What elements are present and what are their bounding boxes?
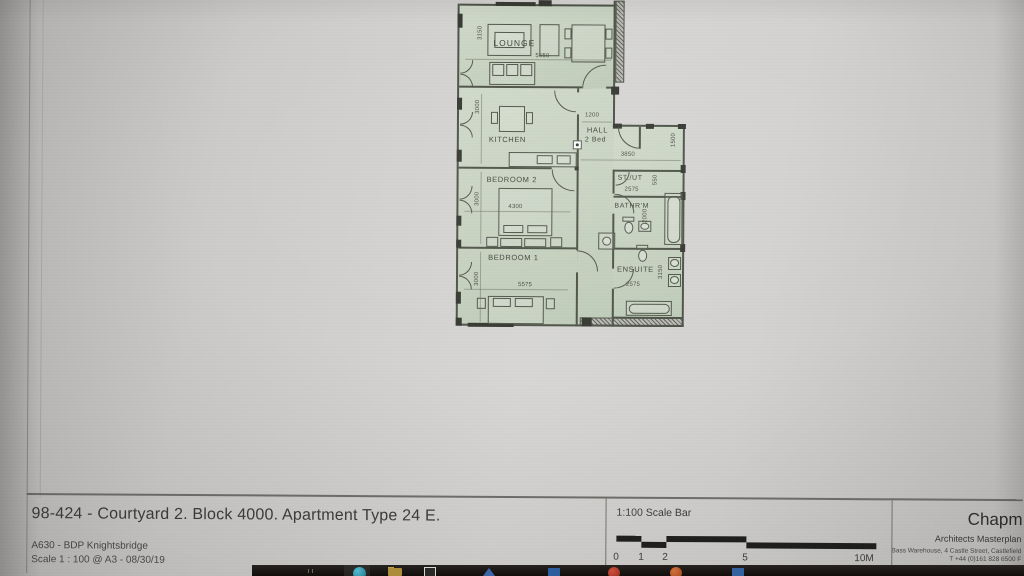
wall-pier — [539, 0, 552, 6]
monitor-photo: LOUNGE KITCHEN HALL 2 Bed BEDROOM 2 ST./… — [0, 0, 1024, 576]
armchair — [539, 24, 559, 56]
taskbar-glyph — [312, 569, 313, 573]
dining-chair — [605, 29, 612, 40]
firm-phone: T +44 (0)161 828 6500 F — [949, 556, 1021, 563]
scale-tick: 1 — [638, 552, 644, 563]
bathtub-inner — [628, 303, 669, 313]
wall-pier — [680, 244, 685, 252]
dimension-text: 550 — [653, 171, 659, 189]
scale-tick: 0 — [613, 552, 619, 563]
dimension-text: 4300 — [508, 204, 522, 210]
window-pier — [457, 150, 462, 162]
window-pier — [457, 98, 462, 110]
red-app-icon[interactable] — [608, 567, 620, 576]
dimension-text: 3850 — [621, 152, 635, 158]
dimension-text: 3000 — [475, 96, 481, 118]
toilet-icon — [638, 250, 647, 262]
scale-bar-segment — [746, 542, 876, 549]
hatched-wall — [615, 1, 625, 83]
dimension-text: 3000 — [474, 188, 480, 210]
sheet-border-line-inner — [40, 0, 44, 497]
scale-bar-segment — [666, 536, 746, 542]
wall-segment — [577, 88, 579, 92]
pillow — [503, 225, 523, 233]
wall-segment — [613, 170, 615, 194]
dimension-text: 2575 — [626, 282, 640, 288]
pillow — [493, 298, 511, 307]
kitchen-table — [499, 106, 525, 132]
basin-bowl — [670, 259, 679, 267]
firm-dept: Architects Masterplan — [935, 534, 1022, 545]
room-label-stut: ST./UT — [618, 175, 643, 182]
firm-address: Bass Warehouse, 4 Castle Street, Castlef… — [892, 547, 1021, 555]
room-label-hall-sub: 2 Bed — [585, 136, 606, 143]
sofa-cushion — [506, 64, 518, 76]
wardrobe — [524, 238, 546, 247]
windows-taskbar[interactable] — [252, 565, 1024, 576]
sofa-cushion — [520, 64, 532, 76]
blue-app2-icon[interactable] — [732, 568, 744, 576]
kitchen-chair — [526, 112, 533, 124]
dimension-text: 1200 — [585, 112, 599, 118]
bedside-table — [550, 237, 562, 247]
scale-tick: 10M — [854, 553, 874, 564]
window-pier — [456, 216, 461, 226]
scale-date-line: Scale 1 : 100 @ A3 - 08/30/19 — [31, 554, 165, 566]
orange-app-icon[interactable] — [670, 567, 682, 576]
wall-pier — [611, 87, 619, 95]
kitchen-sink — [537, 155, 553, 164]
scale-bar-label: 1:100 Scale Bar — [617, 507, 692, 519]
sheet-border-line — [26, 0, 31, 573]
dimension-text: 2000 — [642, 205, 648, 227]
firm-name: Chapm — [968, 510, 1023, 530]
door-leaf-entry — [639, 127, 641, 149]
dimension-text: 5650 — [535, 53, 549, 59]
wall-pier — [681, 165, 686, 173]
window-app-icon[interactable] — [424, 567, 436, 576]
wall-segment — [613, 1, 616, 127]
project-ref: A630 - BDP Knightsbridge — [31, 540, 148, 552]
wall-pier — [456, 318, 462, 326]
dining-chair — [605, 48, 612, 59]
dimension-line — [582, 121, 612, 122]
intercom-dot — [576, 143, 579, 146]
dining-chair — [564, 28, 571, 39]
room-label-lounge: LOUNGE — [493, 38, 535, 48]
blue-square-app-icon[interactable] — [548, 568, 560, 576]
floor-plan: LOUNGE KITCHEN HALL 2 Bed BEDROOM 2 ST./… — [450, 0, 697, 341]
wall-pier — [646, 124, 654, 129]
bathtub-inner — [667, 195, 680, 242]
dining-chair — [564, 47, 571, 58]
file-explorer-icon[interactable] — [388, 568, 402, 576]
dimension-text: 1500 — [671, 129, 677, 151]
window-pier — [456, 292, 461, 304]
scale-bar-segment — [641, 542, 666, 548]
room-label-hall: HALL — [587, 125, 608, 134]
dimension-text: 3000 — [474, 268, 480, 290]
bedside-table — [546, 298, 555, 309]
room-label-ensuite: ENSUITE — [617, 265, 654, 274]
dimension-text: 2575 — [625, 187, 639, 193]
wall-pier — [582, 317, 592, 326]
bedside-table — [486, 237, 498, 247]
dining-table — [571, 24, 605, 62]
kitchen-chair — [491, 112, 498, 124]
pillow — [527, 225, 547, 233]
toilet-icon — [624, 222, 633, 234]
pillow — [515, 298, 533, 307]
dimension-text: 5575 — [518, 282, 532, 288]
basin-bowl — [670, 276, 679, 284]
window-bar — [496, 2, 536, 6]
room-label-bedroom1: BEDROOM 1 — [488, 253, 538, 262]
window-pier — [458, 14, 463, 28]
wall-segment — [612, 289, 614, 327]
title-block-border — [27, 493, 1023, 501]
scale-bar-segment — [616, 536, 641, 542]
scale-tick: 2 — [662, 552, 668, 563]
scale-tick: 5 — [742, 552, 748, 563]
wall-pier — [678, 124, 686, 129]
bedside-table — [477, 298, 486, 309]
edge-icon[interactable] — [353, 567, 366, 576]
blue-app-icon[interactable] — [483, 568, 495, 576]
room-label-kitchen: KITCHEN — [489, 135, 526, 144]
window-pier — [456, 240, 461, 248]
drawing-title: 98-424 - Courtyard 2. Block 4000. Apartm… — [31, 505, 440, 525]
dimension-text: 3150 — [658, 261, 664, 283]
cooktop — [557, 155, 571, 164]
sofa-cushion — [492, 64, 504, 76]
room-label-bedroom2: BEDROOM 2 — [487, 175, 537, 184]
drawing-sheet: LOUNGE KITCHEN HALL 2 Bed BEDROOM 2 ST./… — [0, 0, 1024, 576]
taskbar-glyph — [308, 569, 309, 573]
wardrobe — [500, 238, 522, 247]
washing-machine-drum — [602, 237, 611, 246]
dimension-text: 3150 — [477, 22, 483, 44]
